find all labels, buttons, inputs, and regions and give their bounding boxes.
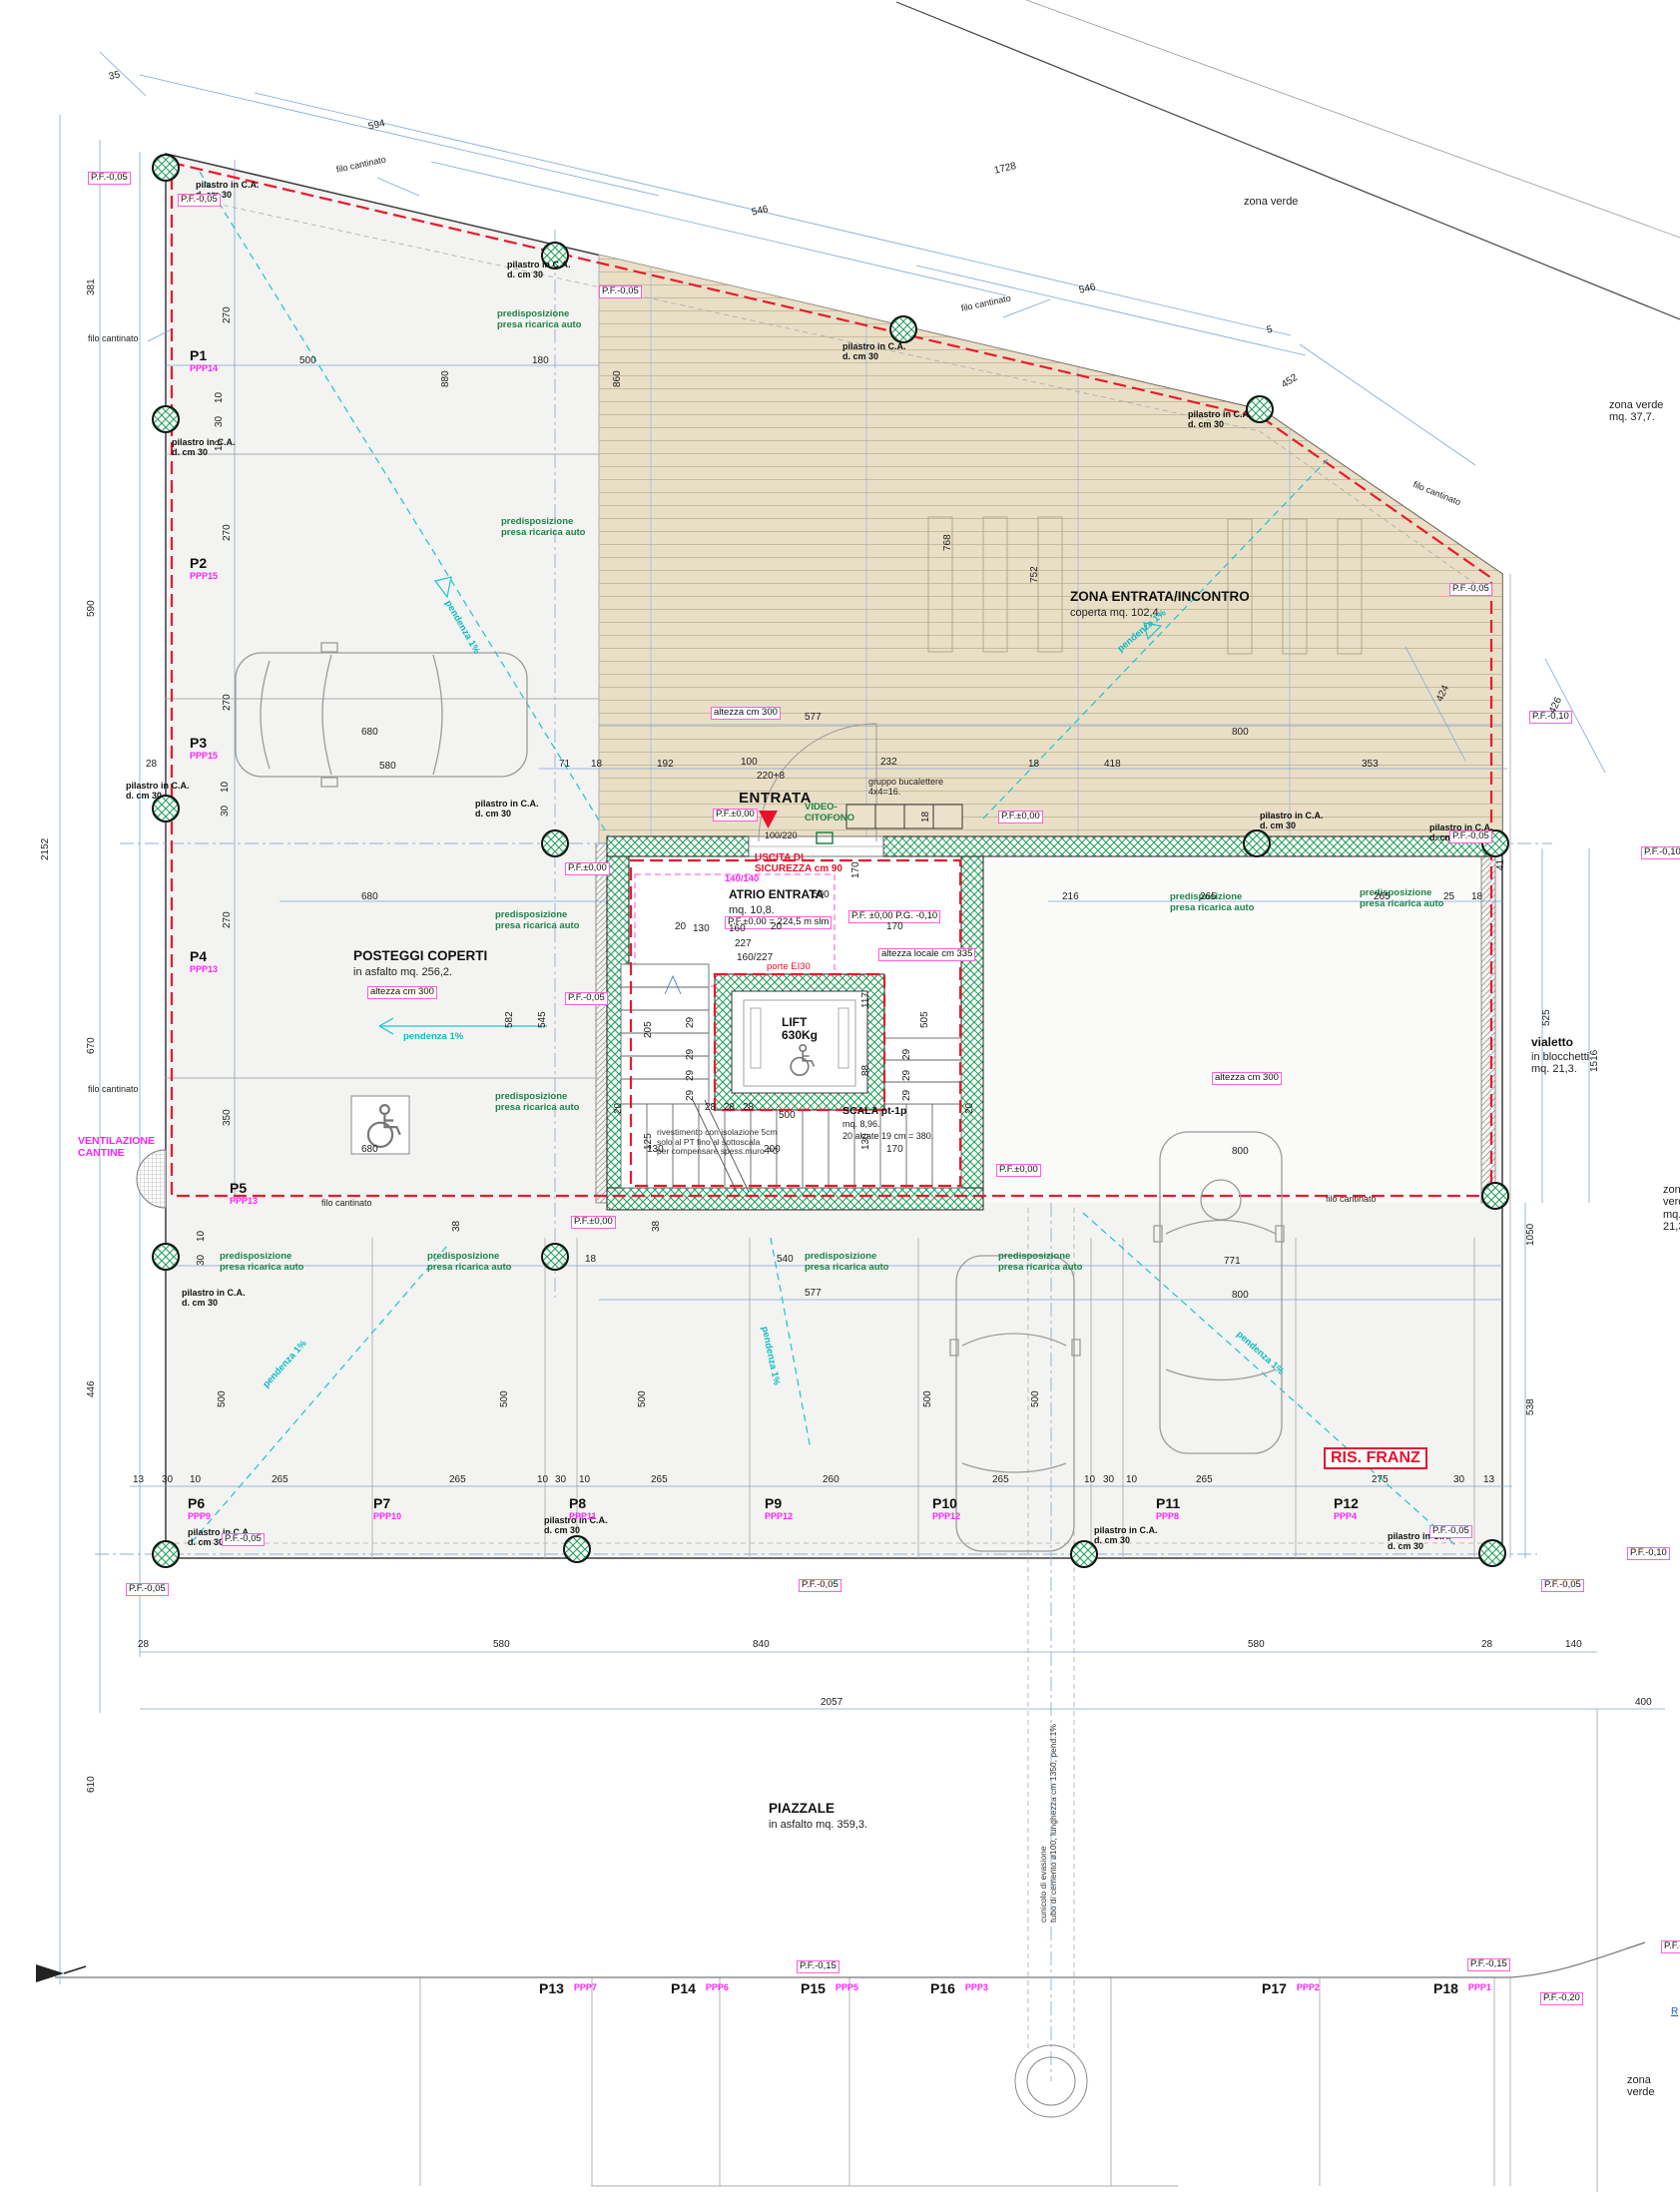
dimension-label: 170: [886, 921, 903, 932]
area-title: PIAZZALE: [769, 1801, 835, 1816]
dimension-label: 30: [555, 1474, 566, 1485]
dimension-label: 130: [693, 923, 710, 934]
dimension-label: 38: [651, 1221, 662, 1232]
basement-line-label: filo cantinato: [88, 1084, 139, 1094]
stall-code: PPP6: [706, 1982, 729, 1992]
area-subtitle: in asfalto mq. 359,3.: [769, 1819, 867, 1831]
stall-P16: P16PPP3: [930, 1980, 988, 1998]
stall-P13: P13PPP7: [539, 1980, 597, 1998]
dimension-label: 265: [651, 1474, 668, 1485]
dimension-label: 170: [886, 1144, 903, 1155]
dimension-label: 117: [860, 992, 871, 1008]
dimension-label: 29: [685, 1090, 696, 1101]
stall-code: PPP11: [569, 1511, 597, 1521]
stall-id: P9: [765, 1495, 793, 1511]
dimension-label: 30: [214, 416, 225, 427]
stall-code: PPP13: [230, 1196, 258, 1206]
dimension-label: 13: [133, 1474, 144, 1485]
stall-code: PPP15: [190, 751, 218, 761]
dimension-label: 216: [1062, 891, 1079, 902]
dimension-label: 30: [162, 1474, 173, 1485]
dimension-label: 500: [637, 1390, 648, 1407]
ventilation-label: VENTILAZIONE CANTINE: [78, 1136, 155, 1160]
level-label: P.F.-0,05: [1449, 830, 1492, 843]
level-label: P.F.-0,05: [799, 1579, 841, 1592]
dimension-label: 1050: [1525, 1224, 1536, 1246]
stall-P5: P5PPP13: [230, 1180, 258, 1206]
stall-id: P17: [1262, 1980, 1287, 1996]
stall-code: PPP4: [1334, 1511, 1359, 1521]
stall-code: PPP10: [373, 1511, 401, 1521]
ev-charging-label: predisposizione presa ricarica auto: [495, 910, 580, 931]
dimension-label: 500: [299, 355, 316, 366]
dimension-label: 590: [86, 600, 97, 617]
dimension-label: 580: [493, 1639, 510, 1650]
dimension-label: 29: [685, 1017, 696, 1028]
dimension-label: 670: [86, 1037, 97, 1054]
opening-size: 140/140: [725, 874, 759, 885]
dimension-label: 10: [537, 1474, 548, 1485]
dimension-label: 5: [1266, 324, 1274, 336]
dimension-label: 29: [901, 1049, 912, 1060]
stall-P15: P15PPP5: [801, 1980, 858, 1998]
dimension-label: 424: [1434, 684, 1451, 704]
dimension-label: 100: [741, 757, 758, 768]
level-label: P.F.±0,00: [998, 811, 1043, 823]
dimension-label: 28: [705, 1102, 716, 1113]
height-label: altezza locale cm 335: [878, 948, 975, 961]
dimension-label: 18: [1028, 759, 1039, 770]
dimension-label: 265: [1196, 1474, 1213, 1485]
stall-code: PPP14: [190, 363, 218, 373]
dimension-label: 840: [753, 1639, 770, 1650]
dimension-label: 18: [585, 1254, 596, 1265]
stall-id: P14: [671, 1980, 696, 1996]
pillar-label: pilastro in C.A. d. cm 30: [1188, 409, 1252, 429]
stall-P4: P4PPP13: [190, 948, 218, 974]
stall-P14: P14PPP6: [671, 1980, 729, 1998]
dimension-label: 28: [1481, 1639, 1492, 1650]
room-subtitle: mq. 10,8.: [729, 904, 775, 916]
stall-P12: P12PPP4: [1334, 1495, 1359, 1521]
stairs-note: 20 alzate 19 cm = 380.: [842, 1131, 933, 1141]
stall-id: P1: [190, 347, 218, 363]
slope-label: pendenza 1%: [403, 1032, 463, 1043]
slope-label: pendenza 1%: [262, 1339, 309, 1390]
dimension-label: 41: [1495, 859, 1506, 870]
dimension-label: 540: [777, 1254, 794, 1265]
dimension-label: 29: [685, 1049, 696, 1060]
dimension-label: 205: [643, 1021, 654, 1038]
dimension-label: 29: [685, 1070, 696, 1081]
dimension-label: 500: [217, 1390, 228, 1407]
fire-door-label: porte EI30: [767, 962, 811, 973]
area-subtitle: in blocchetti mq. 21,3.: [1531, 1051, 1589, 1076]
dimension-label: 580: [379, 761, 396, 772]
dimension-label: 680: [361, 727, 378, 738]
height-label: altezza cm 300: [367, 986, 437, 999]
dimension-label: 800: [1232, 727, 1249, 738]
ev-charging-label: predisposizione presa ricarica auto: [501, 517, 586, 538]
dimension-label: 88: [860, 1065, 871, 1076]
stall-code: PPP1: [1468, 1982, 1491, 1992]
stall-code: PPP13: [190, 964, 218, 974]
dimension-label: 505: [919, 1011, 930, 1028]
stall-P9: P9PPP12: [765, 1495, 793, 1521]
level-label: P.F.-0,10: [1627, 1547, 1670, 1560]
dimension-label: 577: [805, 1288, 822, 1299]
pillar-label: pilastro in C.A. d. cm 30: [172, 437, 236, 457]
dimension-label: 580: [1248, 1639, 1265, 1650]
dimension-label: 546: [751, 204, 770, 219]
pillar-label: pilastro in C.A. d. cm 30: [842, 341, 906, 361]
stall-code: PPP9: [188, 1511, 211, 1521]
cut-label: R: [1671, 2006, 1678, 2017]
pillar-label: pilastro in C.A. d. cm 30: [1094, 1525, 1158, 1545]
ev-charging-label: predisposizione presa ricarica auto: [998, 1252, 1083, 1273]
stall-code: PPP12: [765, 1511, 793, 1521]
dimension-label: 1516: [1589, 1050, 1600, 1072]
dimension-label: 353: [1362, 759, 1379, 770]
dimension-label: 130: [860, 1133, 871, 1150]
dimension-label: 275: [1372, 1474, 1389, 1485]
level-label: P.F.±0,00: [996, 1164, 1041, 1177]
dimension-label: 500: [1030, 1390, 1041, 1407]
mailbox-label: gruppo bucalettere 4x4=16.: [868, 777, 943, 797]
stairs-title: SCALA pt-1p: [842, 1106, 906, 1118]
dimension-label: 2152: [40, 838, 51, 860]
stall-id: P16: [930, 1980, 955, 1996]
stairs-subtitle: mq. 8,96.: [842, 1119, 880, 1129]
dimension-label: 18: [1471, 891, 1482, 902]
area-title: POSTEGGI COPERTI: [353, 948, 487, 963]
basement-line-label: filo cantinato: [1326, 1194, 1377, 1204]
dimension-label: 192: [657, 759, 674, 770]
dimension-label: 610: [86, 1776, 97, 1793]
slope-label: pendenza 1%: [1234, 1330, 1286, 1377]
dimension-label: 381: [86, 278, 97, 295]
stall-id: P4: [190, 948, 218, 964]
dimension-label: 10: [220, 782, 231, 793]
stall-P11: P11PPP8: [1156, 1495, 1180, 1521]
basement-line-label: filo cantinato: [88, 333, 139, 343]
dimension-label: 400: [1635, 1697, 1652, 1708]
level-label: P.F.-0,20: [1540, 1992, 1583, 2005]
level-label: P.F.-0,05: [565, 992, 608, 1005]
dimension-label: 232: [880, 757, 897, 768]
dimension-label: 538: [1525, 1398, 1536, 1415]
basement-line-label: filo cantinato: [1411, 479, 1462, 507]
level-label: P.F.-0,05: [1541, 1579, 1584, 1592]
dimension-label: 10: [190, 1474, 201, 1485]
dimension-label: 270: [222, 306, 233, 323]
stall-code: PPP5: [836, 1982, 858, 1992]
room-title: ATRIO ENTRATA: [729, 888, 824, 901]
dimension-label: 20: [964, 1103, 975, 1114]
dimension-label: 160: [729, 923, 746, 934]
level-label: P.F.-0,05: [88, 172, 131, 185]
dimension-label: 220+8: [757, 771, 785, 782]
area-subtitle: in asfalto mq. 256,2.: [353, 966, 452, 978]
dimension-label: 2057: [821, 1697, 842, 1708]
dimension-label: 71: [559, 759, 570, 770]
dimension-label: 265: [1374, 891, 1391, 902]
ev-charging-label: predisposizione presa ricarica auto: [495, 1092, 580, 1113]
dimension-label: 10: [196, 1231, 207, 1242]
dimension-label: 270: [222, 524, 233, 541]
stall-code: PPP8: [1156, 1511, 1180, 1521]
height-label: altezza cm 300: [711, 707, 781, 720]
dimension-label: 18: [591, 759, 602, 770]
dimension-label: 29: [901, 1090, 912, 1101]
zone-label: zona verde: [1627, 2074, 1680, 2099]
stall-P2: P2PPP15: [190, 555, 218, 581]
ev-charging-label: predisposizione presa ricarica auto: [427, 1252, 512, 1273]
dimension-label: 30: [196, 1255, 207, 1266]
stall-id: P11: [1156, 1495, 1180, 1511]
zone-label: zona verde mq. 21,3.: [1663, 1184, 1680, 1233]
dimension-label: 752: [1029, 566, 1040, 583]
area-title: ZONA ENTRATA/INCONTRO: [1070, 589, 1250, 604]
dimension-label: 20: [613, 1103, 624, 1114]
dimension-label: 10: [1126, 1474, 1137, 1485]
zone-label: zona verde mq. 37,7.: [1609, 399, 1663, 424]
dimension-label: 10: [214, 392, 225, 403]
dimension-label: 446: [86, 1380, 97, 1397]
level-label: P.F.-0,10: [1641, 846, 1680, 859]
dimension-label: 10: [1084, 1474, 1095, 1485]
dimension-label: 200: [764, 1144, 781, 1155]
dimension-label: 546: [1078, 281, 1097, 296]
stall-id: P13: [539, 1980, 564, 1996]
dimension-label: 525: [1541, 1009, 1552, 1026]
dimension-label: 28: [724, 1102, 735, 1113]
stall-code: PPP12: [932, 1511, 960, 1521]
stall-code: PPP15: [190, 571, 218, 581]
level-label: P.F.-0,05: [178, 194, 221, 207]
reserved-stall-label: RIS. FRANZ: [1324, 1447, 1427, 1469]
pillar-label: pilastro in C.A. d. cm 30: [126, 781, 190, 801]
area-title: vialetto: [1531, 1036, 1573, 1049]
dimension-label: 20: [771, 921, 782, 932]
dimension-label: 577: [805, 712, 822, 723]
dimension-label: 270: [222, 911, 233, 928]
stall-P18: P18PPP1: [1433, 1980, 1491, 1998]
level-label: P.F.-0,05: [1449, 583, 1492, 596]
dimension-label: 880: [440, 370, 451, 387]
dimension-label: 170: [850, 861, 861, 878]
dimension-label: 800: [1232, 1290, 1249, 1301]
ev-charging-label: predisposizione presa ricarica auto: [497, 309, 582, 330]
emergency-exit-label: USCITA DI SICUREZZA cm 90: [755, 852, 842, 874]
dimension-label: 260: [823, 1474, 840, 1485]
stall-P10: P10PPP12: [932, 1495, 960, 1521]
dimension-label: 1728: [993, 161, 1017, 177]
dimension-label: 140: [1565, 1639, 1582, 1650]
dimension-label: 800: [1232, 1146, 1249, 1157]
dimension-label: 29: [901, 1070, 912, 1081]
dimension-label: 545: [537, 1011, 548, 1028]
level-label: P.F.-0,05: [1429, 1525, 1472, 1538]
pillar-label: pilastro in C.A. d. cm 30: [182, 1288, 246, 1308]
dimension-label: 18: [920, 812, 931, 823]
dimension-label: 265: [272, 1474, 288, 1485]
stall-id: P10: [932, 1495, 960, 1511]
stall-id: P8: [569, 1495, 597, 1511]
zone-label: zona verde: [1244, 196, 1298, 208]
dimension-label: 500: [813, 889, 830, 900]
ev-charging-label: predisposizione presa ricarica auto: [805, 1252, 889, 1273]
dimension-label: 265: [1200, 891, 1217, 902]
dimension-label: 160/227: [737, 952, 773, 963]
basement-line-label: filo cantinato: [335, 154, 387, 174]
dimension-label: 680: [361, 891, 378, 902]
floor-plan-sheet: zona verdezona verde mq. 37,7.zona verde…: [0, 0, 1680, 2196]
basement-line-label: filo cantinato: [960, 292, 1012, 312]
pillar-label: pilastro in C.A. d. cm 30: [475, 799, 539, 819]
text-layer: zona verdezona verde mq. 37,7.zona verde…: [0, 0, 1680, 2196]
dimension-label: 582: [504, 1011, 515, 1028]
stall-P17: P17PPP2: [1262, 1980, 1320, 1998]
dimension-label: 13: [1483, 1474, 1494, 1485]
stall-P3: P3PPP15: [190, 735, 218, 761]
stall-P8: P8PPP11: [569, 1495, 597, 1521]
slope-label: pendenza 1%: [442, 599, 481, 656]
level-label: P.F.-0,15: [797, 1960, 840, 1973]
dimension-label: 25: [1443, 891, 1454, 902]
stall-code: PPP2: [1297, 1982, 1320, 1992]
dimension-label: 28: [146, 759, 157, 770]
dimension-label: 265: [449, 1474, 466, 1485]
stall-id: P3: [190, 735, 218, 751]
duct-note: cunicolo di evasione tubo di cemento ø10…: [1039, 1724, 1058, 1922]
dimension-label: 20: [675, 921, 686, 932]
dimension-label: 500: [922, 1390, 933, 1407]
dimension-label: 10: [579, 1474, 590, 1485]
level-label: P.F.±0,00: [713, 809, 758, 822]
dimension-label: 227: [735, 938, 752, 949]
stall-P7: P7PPP10: [373, 1495, 401, 1521]
stall-P6: P6PPP9: [188, 1495, 211, 1521]
dimension-label: 500: [779, 1110, 796, 1121]
dimension-label: 30: [220, 806, 231, 817]
dimension-label: 771: [1224, 1256, 1241, 1267]
dimension-label: 30: [1453, 1474, 1464, 1485]
stall-id: P18: [1433, 1980, 1458, 1996]
pillar-label: pilastro in C.A. d. cm 30: [1260, 811, 1324, 830]
level-label: P.F.±0,00: [565, 862, 610, 875]
dimension-label: 35: [108, 69, 121, 82]
level-label: P.F.-0,05: [126, 1583, 169, 1596]
dimension-label: 680: [361, 1144, 378, 1155]
dimension-label: 768: [942, 534, 953, 551]
stall-P1: P1PPP14: [190, 347, 218, 373]
dimension-label: 270: [222, 694, 233, 711]
entrance-label: ENTRATA: [739, 791, 812, 808]
dimension-label: 350: [222, 1109, 233, 1126]
stall-code: PPP7: [574, 1982, 597, 1992]
pillar-label: pilastro in C.A. d. cm 30: [507, 260, 571, 279]
stall-id: P6: [188, 1495, 211, 1511]
stall-id: P5: [230, 1180, 258, 1196]
dimension-label: 500: [499, 1390, 510, 1407]
level-label: P.F.-0,05: [599, 285, 642, 298]
ev-charging-label: predisposizione presa ricarica auto: [220, 1252, 304, 1273]
dimension-label: 125: [643, 1133, 654, 1150]
level-label: P.F.-0,15: [1467, 1958, 1510, 1971]
lift-label: LIFT 630Kg: [782, 1016, 818, 1043]
dimension-label: 180: [532, 355, 549, 366]
dimension-label: 265: [992, 1474, 1009, 1485]
level-label: P.F.-0,05: [222, 1533, 265, 1546]
dimension-label: 10: [214, 440, 225, 451]
stall-id: P7: [373, 1495, 401, 1511]
dimension-label: 30: [1103, 1474, 1114, 1485]
stall-id: P15: [801, 1980, 826, 1996]
dimension-label: 418: [1104, 759, 1121, 770]
dimension-label: 860: [612, 370, 623, 387]
dimension-label: 28: [138, 1639, 149, 1650]
basement-line-label: filo cantinato: [321, 1198, 372, 1208]
stall-id: P12: [1334, 1495, 1359, 1511]
level-label: P.F.-0,22: [1661, 1940, 1680, 1953]
dimension-label: 452: [1280, 372, 1300, 390]
insulation-note: rivestimento con isolazione 5cm solo al …: [657, 1128, 779, 1157]
height-label: altezza cm 300: [1212, 1072, 1282, 1085]
dimension-label: 594: [367, 118, 386, 133]
door-size: 100/220: [765, 830, 798, 840]
intercom-label: VIDEO- CITOFONO: [805, 803, 854, 823]
ev-charging-label: predisposizione presa ricarica auto: [1360, 888, 1444, 909]
dimension-label: 38: [451, 1221, 462, 1232]
stall-code: PPP3: [965, 1982, 988, 1992]
stall-id: P2: [190, 555, 218, 571]
dimension-label: 28: [743, 1102, 754, 1113]
slope-label: pendenza 1%: [759, 1326, 782, 1386]
level-label: P.F.±0,00: [571, 1216, 616, 1229]
